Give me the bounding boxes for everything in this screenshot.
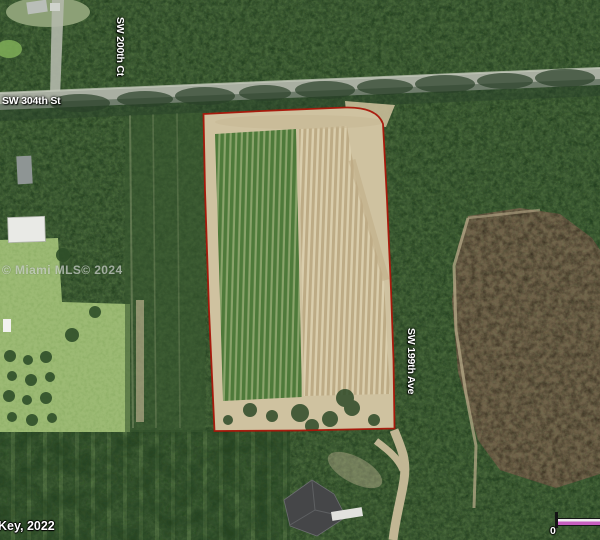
green-crop-rows	[215, 129, 302, 401]
gray-structure	[16, 156, 32, 185]
white-roof-building	[8, 216, 46, 242]
scale-bar: 0	[545, 505, 600, 540]
scale-bar-segment	[557, 518, 600, 526]
imagery-credit: Key, 2022	[0, 519, 55, 533]
mls-watermark: © Miami MLS© 2024	[2, 263, 123, 277]
satellite-map-image: SW 304th St SW 200th Ct SW 199th Ave © M…	[0, 0, 600, 540]
brown-vegetation-patch	[452, 208, 600, 508]
farm-parcel	[204, 107, 395, 433]
scale-bar-zero-label: 0	[550, 525, 556, 537]
left-tree-grove	[125, 112, 205, 432]
dirt-track	[136, 300, 144, 422]
white-vehicle	[3, 319, 11, 332]
